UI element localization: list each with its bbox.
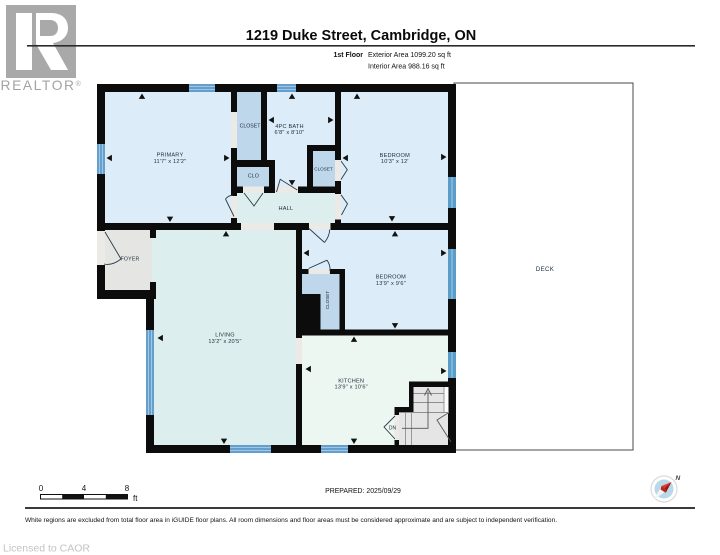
svg-text:CLOSET: CLOSET — [314, 167, 333, 172]
svg-text:CLO: CLO — [248, 173, 259, 179]
svg-text:1219 Duke Street, Cambridge, O: 1219 Duke Street, Cambridge, ON — [246, 28, 476, 44]
svg-text:Interior Area 988.16 sq ft: Interior Area 988.16 sq ft — [368, 64, 445, 71]
svg-text:CLOSET: CLOSET — [240, 124, 262, 130]
svg-text:REALTOR®: REALTOR® — [1, 78, 83, 93]
svg-text:ft: ft — [133, 494, 138, 503]
svg-text:Exterior Area 1099.20 sq ft: Exterior Area 1099.20 sq ft — [368, 52, 451, 59]
svg-text:N: N — [676, 475, 681, 482]
svg-text:11'7" x 12'2": 11'7" x 12'2" — [154, 159, 187, 165]
svg-text:BEDROOM: BEDROOM — [376, 275, 406, 281]
svg-text:PREPARED: 2025/09/29: PREPARED: 2025/09/29 — [325, 488, 401, 495]
svg-text:10'3" x 12': 10'3" x 12' — [381, 159, 409, 165]
svg-text:13'2" x 20'5": 13'2" x 20'5" — [208, 339, 241, 345]
svg-text:0: 0 — [39, 484, 44, 493]
svg-text:6'8" x 8'10": 6'8" x 8'10" — [275, 130, 305, 136]
svg-text:13'9" x 9'6": 13'9" x 9'6" — [376, 281, 406, 287]
svg-text:DECK: DECK — [536, 266, 555, 273]
svg-text:13'9" x 10'6": 13'9" x 10'6" — [335, 385, 368, 391]
svg-text:FOYER: FOYER — [121, 256, 140, 262]
svg-text:White regions are excluded fro: White regions are excluded from total fl… — [25, 517, 557, 524]
svg-text:CLOSET: CLOSET — [325, 291, 330, 310]
svg-text:HALL: HALL — [279, 206, 294, 212]
svg-text:8: 8 — [125, 484, 130, 493]
svg-text:LIVING: LIVING — [215, 333, 235, 339]
svg-text:DN: DN — [389, 426, 397, 432]
svg-text:1st Floor: 1st Floor — [333, 52, 363, 59]
svg-text:PRIMARY: PRIMARY — [157, 152, 184, 158]
svg-text:4: 4 — [82, 484, 87, 493]
svg-text:Licensed to CAOR: Licensed to CAOR — [3, 543, 90, 555]
